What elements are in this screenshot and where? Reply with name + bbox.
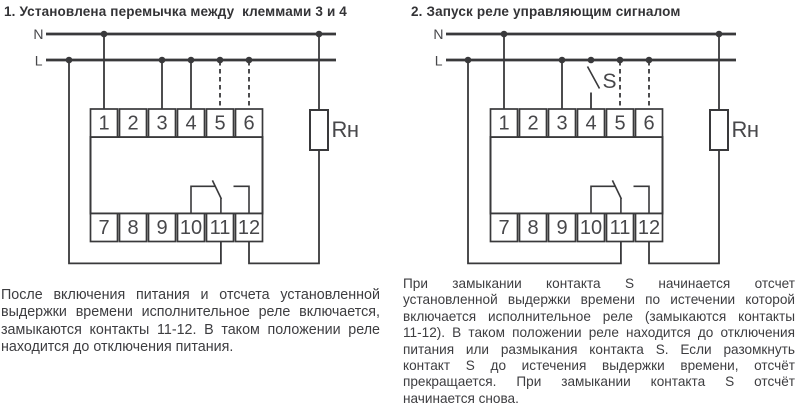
relay-contact-symbol [191,180,249,213]
terminal-row-bottom: 7 8 9 10 11 12 [491,214,663,242]
description-line: контакт S до истечения выдержки времени,… [403,358,795,374]
terminal-number: 12 [238,217,260,239]
terminal-number: 8 [527,217,538,239]
power-bus-lines [446,34,736,60]
terminal-number: 2 [127,113,138,135]
terminal-number: 8 [127,217,138,239]
terminal-number: 1 [98,113,109,135]
diagram-1-title: 1. Установлена перемычка между клеммами … [4,4,347,19]
terminal-number: 3 [156,113,167,135]
description-line: выдержки времени исполнительное реле вкл… [1,304,380,321]
power-bus-lines [46,34,336,60]
description-line: 11-12). В таком положении реле находится… [403,325,795,341]
diagram-2-section: 2. Запуск реле управляющим сигналом N L [400,0,800,409]
wiring-diagram-1: N L [0,20,400,275]
diagram-1-description: После включения питания и отсчета устано… [1,287,380,356]
neutral-label: N [33,26,43,42]
diagram-2-description: При замыкании контакта S начинается отсч… [403,276,795,407]
neutral-label: N [433,26,443,42]
description-line: включается исполнительное реле (замыкают… [403,309,795,325]
load-resistor: Rн [310,110,359,150]
terminal-number: 1 [498,113,509,135]
description-line: После включения питания и отсчета устано… [1,287,380,304]
load-label: Rн [332,117,359,142]
switch-label: S [603,70,617,93]
terminal-number: 12 [638,217,660,239]
terminal-number: 11 [610,217,631,239]
relay-device-body [491,137,663,214]
description-line: замыкаются контакты 11-12. В таком полож… [1,322,380,339]
relay-contact-symbol [591,180,649,213]
terminal-row-bottom: 7 8 9 10 11 12 [91,214,263,242]
terminal-number: 5 [614,113,625,135]
terminal-number: 7 [498,217,509,239]
terminal-number: 3 [556,113,567,135]
diagram-1-section: 1. Установлена перемычка между клеммами … [0,0,400,409]
control-switch: S [588,67,617,110]
terminal-row-top: 1 2 3 4 5 6 [91,109,263,137]
line-label: L [435,53,443,69]
description-line: начинается снова. [403,391,795,407]
load-resistor: Rн [710,110,759,150]
relay-device-body [91,137,263,214]
terminal-number: 10 [580,217,602,239]
terminal-number: 4 [185,113,196,135]
description-line: прекращается. При замыкании контакта S о… [403,374,795,390]
terminal-row-top: 1 2 3 4 5 6 [491,109,663,137]
terminal-number: 9 [156,217,167,239]
terminal-number: 7 [98,217,109,239]
page: 1. Установлена перемычка между клеммами … [0,0,800,409]
description-line: находится до отключения питания. [1,339,380,356]
description-line: питания или размыкания контакта S. Если … [403,342,795,358]
wiring-diagram-2: N L S [400,20,800,275]
terminal-number: 5 [214,113,225,135]
terminal-number: 9 [556,217,567,239]
line-label: L [35,53,43,69]
load-label: Rн [732,117,759,142]
terminal-number: 10 [180,217,202,239]
terminal-number: 11 [210,217,231,239]
terminal-number: 6 [243,113,254,135]
terminal-number: 4 [585,113,596,135]
description-line: При замыкании контакта S начинается отсч… [403,276,795,292]
description-line: установленной выдержки времени по истече… [403,292,795,308]
terminal-number: 2 [527,113,538,135]
terminal-number: 6 [643,113,654,135]
diagram-2-title: 2. Запуск реле управляющим сигналом [411,4,680,19]
